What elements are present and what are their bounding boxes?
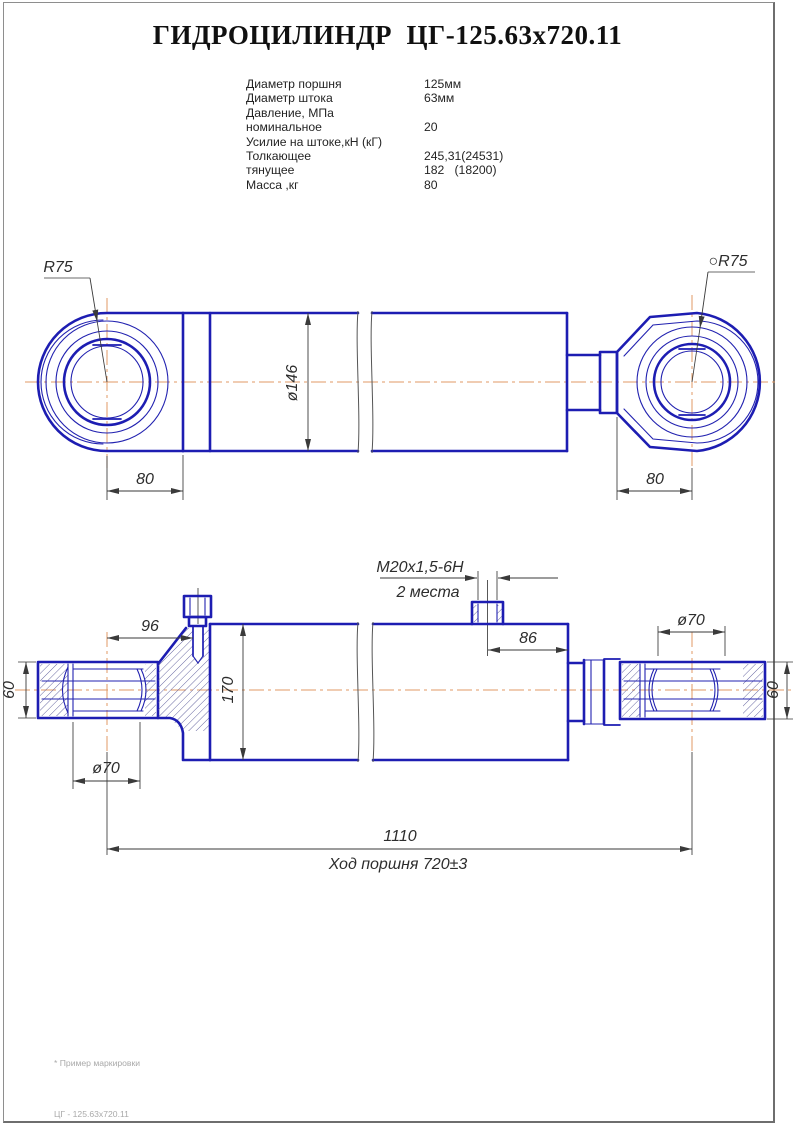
bottom-view-dimensions: 96 170 M20x1,5-6H 2 места 86 ø70 60 60 bbox=[1, 559, 793, 873]
width-left-label: 60 bbox=[1, 681, 18, 699]
radius-label-left: R75 bbox=[43, 259, 72, 276]
drawing-sheet: ГИДРОЦИЛИНДР ЦГ-125.63х720.11 Диаметр по… bbox=[0, 0, 802, 1127]
marking-note-line1: * Пример маркировки bbox=[54, 1055, 140, 1072]
bottom-view: 96 170 M20x1,5-6H 2 места 86 ø70 60 60 bbox=[1, 559, 793, 873]
break-line bbox=[372, 622, 374, 762]
barrel-diameter-label: ø146 bbox=[284, 365, 301, 402]
overall-length-label: 1110 bbox=[383, 828, 416, 845]
eye-width-right-label: 80 bbox=[646, 471, 664, 488]
technical-drawing: R75 ○R75 ø146 80 80 bbox=[0, 0, 802, 1127]
rod-section bbox=[568, 659, 620, 725]
piston-stroke-label: Ход поршня 720±3 bbox=[328, 856, 468, 873]
width-right-label: 60 bbox=[765, 681, 782, 699]
dim-86-label: 86 bbox=[519, 630, 537, 647]
thread-places-label: 2 места bbox=[395, 584, 459, 601]
marking-note: * Пример маркировки ЦГ - 125.63х720.11 2… bbox=[54, 1021, 140, 1127]
radius-label-right: ○R75 bbox=[708, 253, 747, 270]
marking-note-line2: ЦГ - 125.63х720.11 bbox=[54, 1106, 140, 1123]
bore-left-label: ø70 bbox=[92, 760, 120, 777]
thread-label: M20x1,5-6H bbox=[376, 559, 464, 576]
eye-width-left-label: 80 bbox=[136, 471, 154, 488]
barrel-section bbox=[210, 622, 568, 762]
bore-right-label: ø70 bbox=[677, 612, 705, 629]
break-line bbox=[357, 622, 359, 762]
top-view: R75 ○R75 ø146 80 80 bbox=[25, 253, 778, 500]
dim-170-label: 170 bbox=[220, 677, 237, 704]
dim-96-label: 96 bbox=[141, 618, 159, 635]
